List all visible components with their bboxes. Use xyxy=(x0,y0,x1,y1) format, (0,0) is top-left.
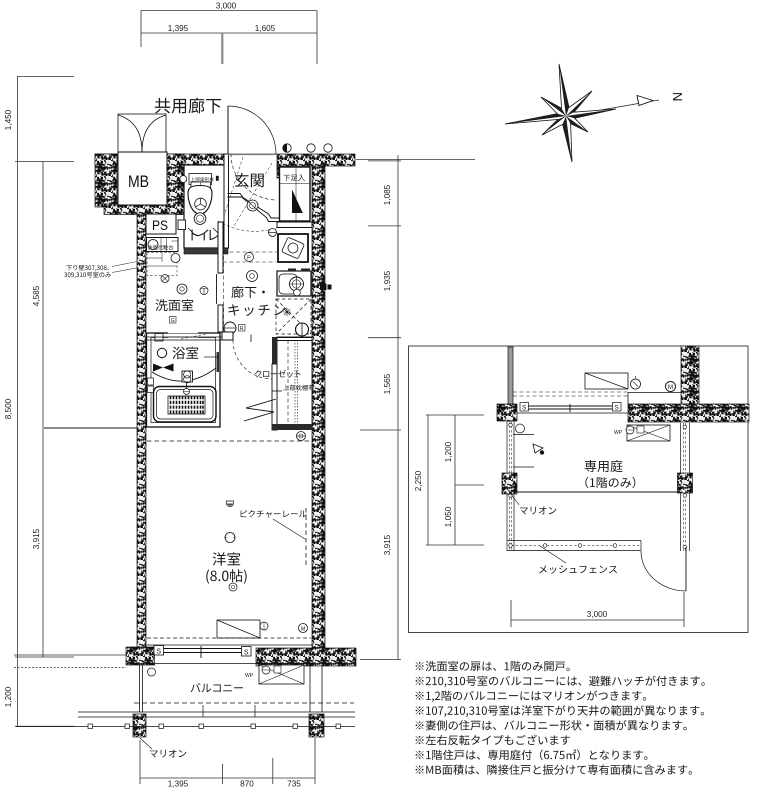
svg-text:1,605: 1,605 xyxy=(255,24,276,33)
svg-text:S: S xyxy=(615,405,620,412)
svg-text:WP: WP xyxy=(614,430,623,436)
svg-text:P: P xyxy=(247,256,251,262)
svg-text:G: G xyxy=(171,318,175,324)
svg-text:3,915: 3,915 xyxy=(383,534,392,555)
svg-text:PS: PS xyxy=(152,218,168,233)
svg-text:1,050: 1,050 xyxy=(444,506,453,527)
svg-text:3,000: 3,000 xyxy=(216,2,237,11)
svg-text:1,200: 1,200 xyxy=(444,441,453,462)
svg-text:4,585: 4,585 xyxy=(32,285,41,306)
svg-text:3,915: 3,915 xyxy=(32,528,41,549)
svg-text:735: 735 xyxy=(287,780,301,789)
svg-text:1,200: 1,200 xyxy=(4,686,13,707)
svg-text:S: S xyxy=(244,650,249,657)
svg-text:1,450: 1,450 xyxy=(4,109,13,130)
svg-text:1,565: 1,565 xyxy=(383,373,392,394)
svg-text:R: R xyxy=(240,326,244,332)
svg-text:1,085: 1,085 xyxy=(383,184,392,205)
svg-text:S: S xyxy=(156,649,161,656)
svg-text:1,395: 1,395 xyxy=(168,24,189,33)
svg-text:N: N xyxy=(670,92,685,101)
svg-text:M: M xyxy=(301,627,306,633)
svg-text:1,395: 1,395 xyxy=(168,780,189,789)
svg-text:MB: MB xyxy=(128,172,149,191)
svg-text:S: S xyxy=(522,405,527,412)
svg-text:2,250: 2,250 xyxy=(414,470,423,491)
svg-text:3,000: 3,000 xyxy=(587,610,608,619)
svg-text:8,500: 8,500 xyxy=(4,398,13,419)
svg-text:1,935: 1,935 xyxy=(383,270,392,291)
svg-text:870: 870 xyxy=(240,780,254,789)
svg-text:M: M xyxy=(668,385,673,391)
svg-text:WP: WP xyxy=(245,673,254,679)
